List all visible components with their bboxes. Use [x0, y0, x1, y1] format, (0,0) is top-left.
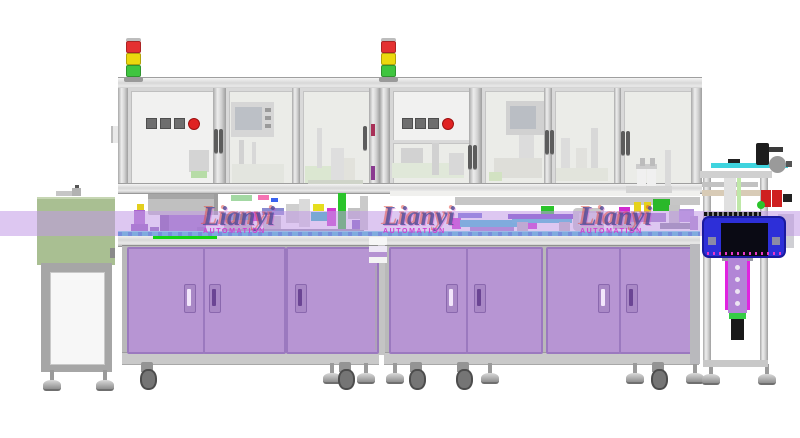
enclosure-door-handle [214, 129, 218, 153]
tower-base [124, 77, 143, 82]
conveyor-line [118, 231, 700, 236]
foot-base [702, 374, 720, 385]
enclosure-door-handle [363, 126, 367, 150]
component [556, 168, 608, 181]
tray-stack [369, 237, 387, 245]
right-station-post [703, 171, 711, 367]
component [232, 164, 284, 183]
handle-slot [449, 289, 453, 306]
leveling-foot [480, 363, 500, 389]
component [265, 108, 271, 112]
end-panel [690, 244, 700, 364]
cabinet-door-handle [474, 284, 486, 313]
leveling-foot [701, 364, 721, 390]
component [630, 213, 666, 222]
component [308, 180, 363, 184]
leveling-foot [757, 364, 777, 390]
component [313, 204, 324, 211]
caster-wheel-disc [456, 369, 473, 390]
caster-wheel [455, 362, 471, 389]
clamp-knob [783, 194, 792, 202]
caster-wheel [408, 362, 424, 389]
foot-base [357, 373, 375, 384]
component [262, 208, 284, 215]
enclosure-door-handle [621, 131, 625, 155]
component [299, 199, 310, 227]
cabinet-door-handle [626, 284, 638, 313]
tower-red-segment [126, 41, 141, 53]
component [449, 153, 464, 175]
lm-top-part [72, 188, 81, 196]
handwheel [769, 156, 786, 173]
hmi-screen [235, 107, 262, 130]
signal-tower-light [381, 38, 396, 82]
foot-base [386, 373, 404, 384]
handle-slot [187, 289, 191, 306]
gripper-cylinder [731, 319, 744, 340]
tower-yellow-segment [381, 53, 396, 65]
component [489, 172, 502, 181]
cabinet-door-handle [209, 284, 221, 313]
tower-yellow-segment [126, 53, 141, 65]
cabinet-door-handle [184, 284, 196, 313]
component [541, 206, 554, 214]
component [331, 148, 344, 183]
green-button [757, 201, 765, 209]
foot-base [96, 380, 114, 391]
enclosure-door-handle [626, 131, 630, 155]
component [286, 204, 299, 223]
green-line [153, 236, 217, 239]
inspection-box [702, 216, 786, 258]
slide-rail [737, 178, 741, 214]
component [265, 116, 271, 120]
leveling-foot [625, 363, 645, 389]
caster-wheel-disc [140, 369, 157, 390]
cabinet-door-handle [598, 284, 610, 313]
component [137, 204, 144, 210]
hmi-screen [510, 106, 536, 129]
component [665, 150, 671, 186]
box-lug [708, 237, 716, 245]
leveling-foot [356, 363, 376, 389]
component [579, 213, 598, 226]
tower-green-segment [381, 65, 396, 77]
foot-base [43, 380, 61, 391]
component [371, 124, 375, 136]
tower-red-segment [381, 41, 396, 53]
tunnel-machine-panel [50, 272, 105, 365]
door-hinge-edge [111, 126, 113, 143]
component [644, 202, 651, 212]
panel-red-button [188, 118, 200, 130]
component [271, 198, 278, 202]
machine2-door-upper [390, 88, 475, 144]
component [265, 124, 271, 128]
watermark-text: Lianyi [383, 205, 455, 228]
component [311, 212, 328, 221]
caster-wheel-disc [338, 369, 355, 390]
actuator-hole [735, 289, 740, 294]
machine2-post [380, 88, 390, 184]
caster-wheel-disc [651, 369, 668, 390]
machine2-post [469, 88, 482, 184]
component [634, 202, 641, 212]
clamp-red [772, 190, 782, 207]
component [251, 212, 260, 221]
cabinet-door-handle [446, 284, 458, 313]
panel-square-button [428, 118, 439, 129]
box-bottom-dots [707, 252, 781, 255]
leveling-foot [95, 370, 115, 396]
leveling-foot [42, 370, 62, 396]
machine2-post [614, 88, 621, 184]
din-rail [338, 193, 346, 234]
motor [756, 143, 769, 165]
component [401, 148, 423, 163]
lm-latch [110, 248, 115, 258]
lm-top-part [56, 191, 72, 196]
leveling-foot [385, 363, 405, 389]
bowl-feeder-rim [148, 194, 218, 199]
component [653, 199, 670, 211]
component [317, 128, 322, 168]
enclosure-door-handle [468, 145, 472, 169]
caster-wheel [337, 362, 353, 389]
caster-wheel [650, 362, 666, 389]
component [375, 266, 377, 350]
caster-wheel-disc [409, 369, 426, 390]
machine1-post [292, 88, 300, 184]
machine2-window-3 [621, 88, 697, 189]
tower-green-segment [126, 65, 141, 77]
enclosure-door-handle [545, 130, 549, 154]
actuator-rail [747, 258, 750, 310]
handle-slot [212, 289, 216, 306]
foot-base [626, 373, 644, 384]
component [619, 207, 630, 215]
panel-square-button [146, 118, 157, 129]
cabinet-door-handle [295, 284, 307, 313]
motor-connector [769, 147, 783, 152]
handle-slot [601, 289, 605, 306]
component [626, 186, 672, 193]
actuator-hole [735, 301, 740, 306]
machine1-post [118, 88, 128, 184]
signal-tower-light [126, 38, 141, 82]
box-lug [772, 237, 780, 245]
door-device [189, 150, 209, 172]
actuator-hole [735, 277, 740, 282]
component [327, 208, 336, 226]
tunnel-machine-body [37, 197, 115, 265]
caster-wheel [139, 362, 155, 389]
component [432, 143, 439, 175]
handle-slot [477, 289, 481, 306]
actuator-hole [735, 265, 740, 270]
component [231, 195, 252, 201]
tower-base [379, 77, 398, 82]
component [371, 166, 375, 180]
component [191, 171, 207, 178]
panel-square-button [174, 118, 185, 129]
slide [724, 176, 736, 214]
enclosure-door-handle [550, 130, 554, 154]
lm-top-part [75, 185, 79, 188]
enclosure-door-handle [219, 129, 223, 153]
handle-slot [629, 289, 633, 306]
handwheel-axle [786, 161, 792, 167]
panel-square-button [415, 118, 426, 129]
foot-base [481, 373, 499, 384]
component [360, 196, 368, 230]
component [258, 195, 269, 200]
tunnel-machine-stand [41, 263, 112, 372]
panel-red-button [442, 118, 454, 130]
component [690, 216, 698, 230]
handle-slot [298, 289, 302, 306]
enclosure-door-handle [473, 145, 477, 169]
panel-square-button [402, 118, 413, 129]
automation-line-render: LianyiAUTOMATIONLianyiAUTOMATIONLianyiAU… [0, 0, 800, 438]
plate-chip [728, 159, 740, 163]
component [650, 158, 655, 166]
foot-base [758, 374, 776, 385]
tray-stack [369, 257, 387, 263]
top-beam [700, 171, 772, 178]
component [640, 158, 645, 166]
bowl-feeder-shade [214, 194, 218, 215]
component [458, 213, 482, 218]
machine2-post [691, 88, 702, 184]
lower-beam [703, 360, 768, 367]
panel-square-button [160, 118, 171, 129]
